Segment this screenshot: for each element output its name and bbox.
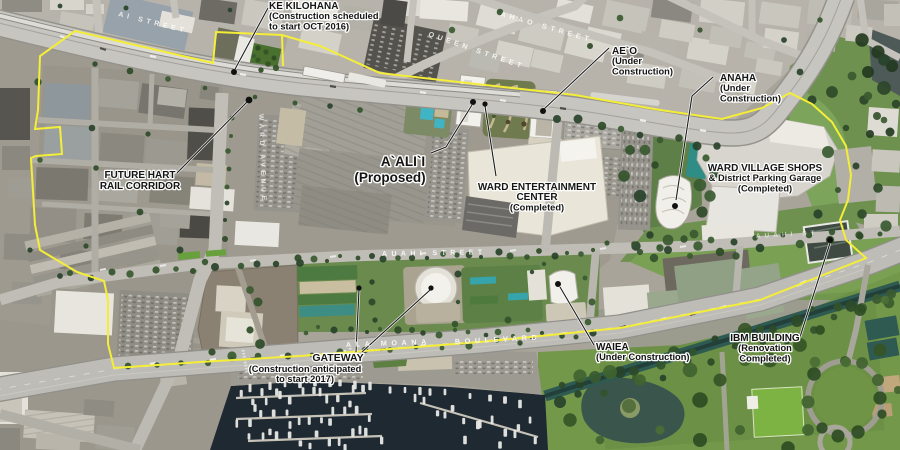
svg-text:RAIL CORRIDOR: RAIL CORRIDOR — [100, 181, 181, 192]
svg-text:(Under: (Under — [720, 83, 750, 93]
svg-text:(Completed): (Completed) — [738, 183, 792, 193]
svg-text:to start OCT 2016): to start OCT 2016) — [269, 21, 349, 31]
svg-text:& District Parking Garage: & District Parking Garage — [709, 173, 822, 183]
svg-text:(Construction anticipated: (Construction anticipated — [249, 364, 362, 374]
svg-text:(Renovation: (Renovation — [738, 343, 792, 353]
svg-text:FUTURE HART: FUTURE HART — [104, 170, 175, 181]
svg-text:to start 2017): to start 2017) — [276, 374, 334, 384]
svg-text:Construction): Construction) — [612, 66, 673, 76]
svg-text:(Construction scheduled: (Construction scheduled — [269, 11, 379, 21]
svg-text:(Completed): (Completed) — [510, 202, 564, 212]
svg-text:Completed): Completed) — [739, 353, 790, 363]
svg-text:A`ALI`I: A`ALI`I — [381, 154, 425, 169]
svg-text:(Under Construction): (Under Construction) — [596, 352, 689, 362]
svg-text:(Proposed): (Proposed) — [354, 170, 425, 185]
svg-text:(Under: (Under — [612, 56, 642, 66]
svg-text:Construction): Construction) — [720, 93, 781, 103]
svg-text:GATEWAY: GATEWAY — [312, 352, 363, 364]
